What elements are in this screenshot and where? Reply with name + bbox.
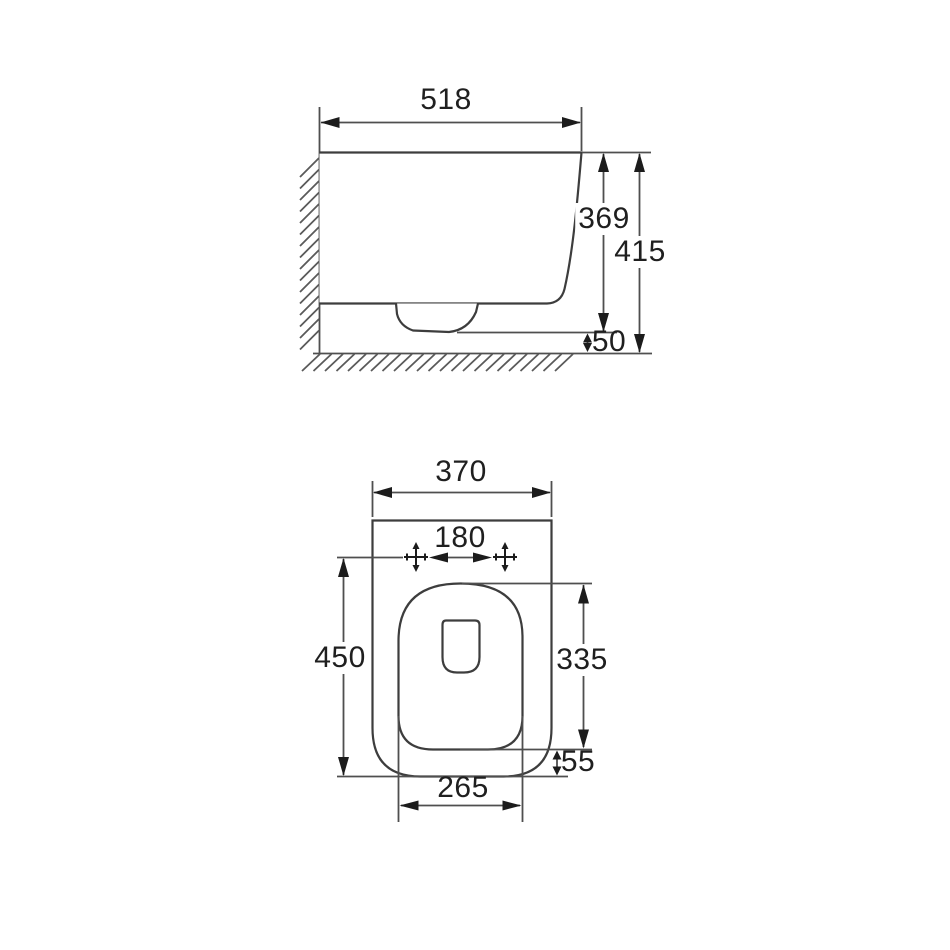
- toilet-side-outline: [320, 153, 582, 304]
- dim-369: [598, 153, 609, 332]
- floor-hatch: [302, 354, 573, 371]
- outlet-bump: [396, 304, 478, 333]
- plan-bowl-depth-dim-label: 335: [553, 644, 611, 676]
- wall-hatch: [300, 158, 319, 350]
- side-width-dim-label: 518: [420, 85, 472, 115]
- side-floor-clearance-dim-label: 50: [592, 327, 626, 357]
- side-overall-height-dim-label: 415: [611, 236, 669, 268]
- dim-50: [583, 334, 592, 353]
- plan-front-overhang-dim-label: 55: [561, 747, 595, 777]
- plan-bowl-width-dim-label: 265: [437, 773, 489, 803]
- plan-depth-dim-label: 450: [311, 642, 369, 674]
- drain-outline: [443, 621, 480, 673]
- plan-hole-centres-dim-label: 180: [434, 523, 486, 553]
- side-underside-height-dim-label: 369: [575, 203, 633, 235]
- plan-width-dim-label: 370: [435, 457, 487, 487]
- drawing-canvas: 518 369 415 50 370 180 450 335 55 265: [0, 0, 950, 950]
